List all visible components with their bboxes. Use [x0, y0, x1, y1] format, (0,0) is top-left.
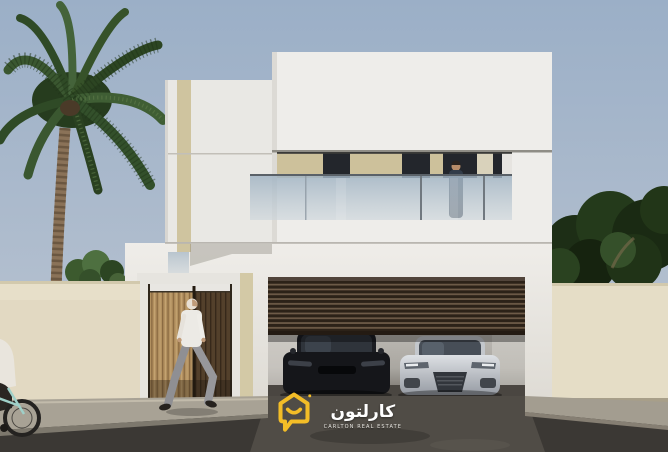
- facade-accent-strip: [177, 80, 191, 252]
- villa-render-scene: [0, 0, 668, 452]
- portal-accent-strip: [240, 273, 253, 403]
- car-grille: [433, 372, 467, 392]
- garage: [268, 277, 525, 400]
- stair-tower: [165, 80, 272, 252]
- boundary-wall-right: [552, 283, 668, 406]
- villa: [125, 52, 552, 403]
- garage-louver-door: [268, 277, 525, 334]
- boundary-wall-left: [0, 281, 140, 408]
- street: [0, 396, 668, 452]
- balcony-glass-balustrade: [250, 174, 512, 220]
- door-transom: [150, 284, 230, 291]
- villa-render: كارلتون CARLTON REAL ESTATE: [0, 0, 668, 452]
